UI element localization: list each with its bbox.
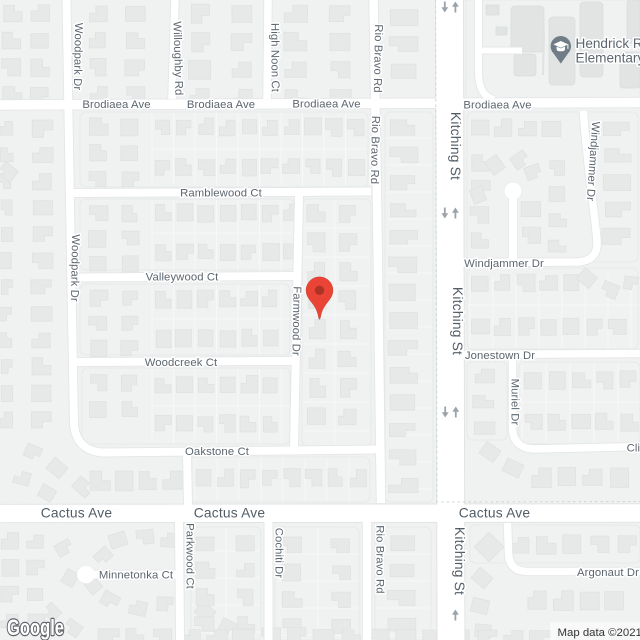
svg-text:Valleywood Ct: Valleywood Ct — [146, 272, 219, 284]
svg-text:Kitching St: Kitching St — [448, 112, 463, 180]
svg-text:Windjammer Dr: Windjammer Dr — [464, 258, 544, 270]
svg-text:Muriel Dr: Muriel Dr — [509, 379, 521, 426]
svg-text:Brodiaea Ave: Brodiaea Ave — [292, 99, 360, 111]
svg-text:Woodpark Dr: Woodpark Dr — [71, 23, 84, 91]
svg-text:Woodpark Dr: Woodpark Dr — [68, 234, 81, 302]
svg-text:Argonaut Dr: Argonaut Dr — [577, 567, 639, 579]
svg-text:Cactus Ave: Cactus Ave — [194, 506, 266, 521]
svg-text:Oakstone Ct: Oakstone Ct — [185, 446, 250, 458]
svg-text:Cochiti Dr: Cochiti Dr — [273, 528, 285, 579]
svg-text:Ramblewood Ct: Ramblewood Ct — [180, 188, 262, 200]
svg-text:Rio Bravo Rd: Rio Bravo Rd — [374, 525, 386, 593]
svg-text:Woodcreek Ct: Woodcreek Ct — [145, 357, 218, 369]
svg-text:Farmwood Dr: Farmwood Dr — [289, 286, 302, 356]
svg-text:Rio Bravo Rd: Rio Bravo Rd — [371, 24, 384, 93]
svg-text:Brodiaea Ave: Brodiaea Ave — [82, 99, 150, 111]
svg-text:Kitching St: Kitching St — [452, 527, 467, 595]
svg-text:Clifton: Clifton — [627, 443, 640, 455]
svg-text:Parkwood Ct: Parkwood Ct — [184, 523, 196, 590]
svg-text:Minnetonka Ct: Minnetonka Ct — [99, 570, 174, 582]
svg-text:Elementary: Elementary — [576, 51, 640, 66]
svg-text:Hendrick Ra: Hendrick Ra — [576, 36, 640, 51]
svg-text:Cactus Ave: Cactus Ave — [41, 506, 113, 521]
svg-text:Brodiaea Ave: Brodiaea Ave — [187, 99, 255, 111]
svg-text:High Noon Ct: High Noon Ct — [268, 23, 281, 93]
svg-text:Kitching St: Kitching St — [450, 287, 465, 355]
svg-text:Google: Google — [7, 615, 64, 640]
svg-text:Willoughby Rd: Willoughby Rd — [171, 21, 185, 95]
svg-text:Brodiaea Ave: Brodiaea Ave — [463, 100, 531, 112]
svg-text:Rio Bravo Rd: Rio Bravo Rd — [368, 116, 381, 185]
svg-text:Cactus Ave: Cactus Ave — [459, 506, 531, 521]
svg-text:Map data ©2021: Map data ©2021 — [558, 627, 640, 639]
svg-text:Jonestown Dr: Jonestown Dr — [465, 350, 535, 362]
